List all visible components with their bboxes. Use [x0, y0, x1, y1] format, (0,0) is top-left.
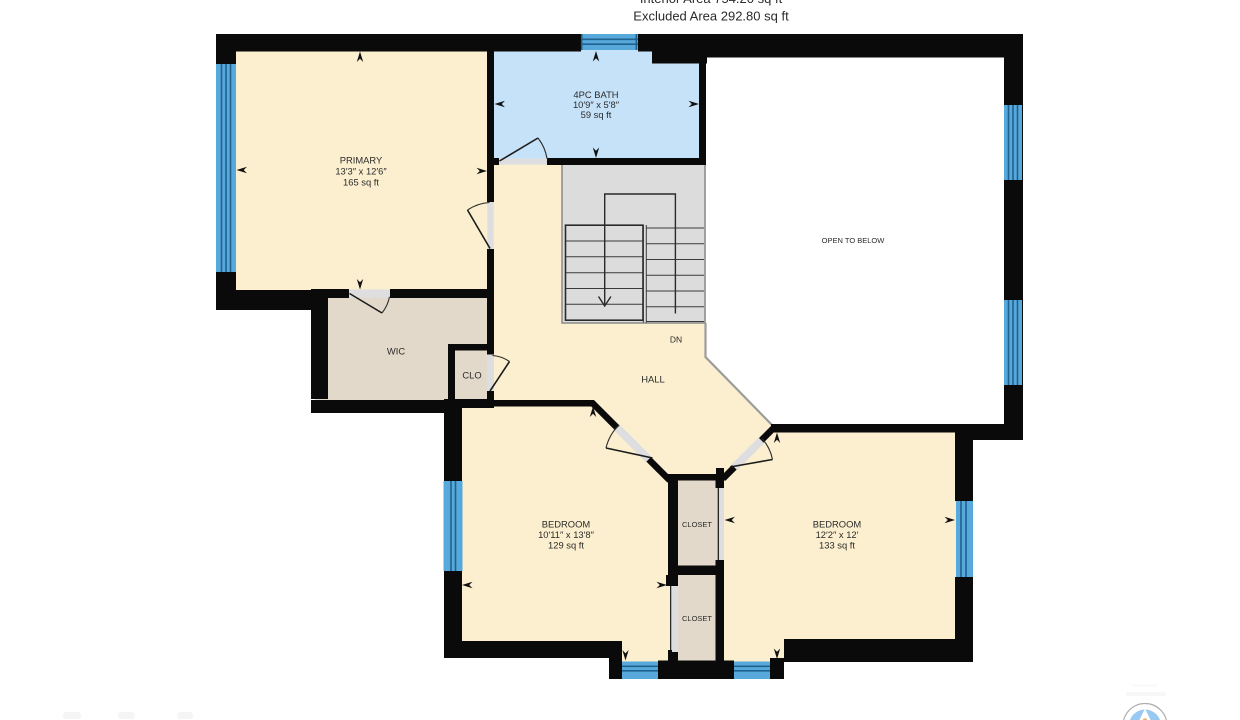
svg-text:Excluded Area 292.80 sq ft: Excluded Area 292.80 sq ft — [633, 9, 789, 24]
svg-text:165 sq ft: 165 sq ft — [343, 177, 379, 188]
svg-text:CLOSET: CLOSET — [682, 614, 712, 623]
svg-text:Interior Area 754.20 sq ft: Interior Area 754.20 sq ft — [640, 0, 783, 6]
svg-text:CLO: CLO — [462, 370, 481, 381]
svg-text:13′3″ x 12′6″: 13′3″ x 12′6″ — [335, 166, 387, 177]
svg-text:10′11″ x 13′8″: 10′11″ x 13′8″ — [538, 529, 595, 540]
svg-text:BEDROOM: BEDROOM — [542, 519, 591, 530]
svg-text:12′2″ x 12′: 12′2″ x 12′ — [816, 529, 859, 540]
svg-text:WIC: WIC — [387, 346, 405, 357]
svg-text:DN: DN — [670, 335, 682, 345]
svg-text:PRIMARY: PRIMARY — [340, 155, 383, 166]
svg-text:133 sq ft: 133 sq ft — [819, 540, 855, 551]
svg-text:OPEN TO BELOW: OPEN TO BELOW — [822, 236, 886, 245]
svg-text:129 sq ft: 129 sq ft — [548, 540, 584, 551]
svg-text:HALL: HALL — [641, 374, 664, 385]
svg-text:BEDROOM: BEDROOM — [813, 519, 862, 530]
svg-text:59 sq ft: 59 sq ft — [581, 109, 612, 120]
svg-text:CLOSET: CLOSET — [682, 520, 712, 529]
